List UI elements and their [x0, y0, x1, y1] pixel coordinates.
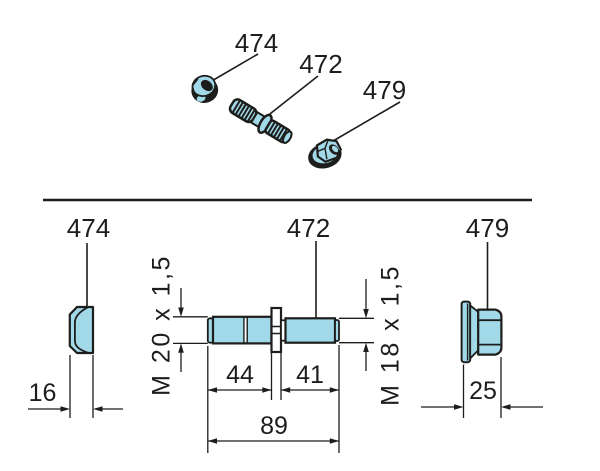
hex-body-outline: [478, 310, 501, 355]
dimension-16-label: 16: [29, 379, 57, 407]
part-label-479-dimensioned[interactable]: 479: [466, 213, 509, 243]
technical-drawing-svg: 474 472 479: [0, 0, 600, 471]
leader-line-472: [266, 76, 318, 117]
flange-plate: [462, 302, 471, 363]
dimension-arrowhead: [281, 387, 290, 393]
stud-collar-flange: [272, 308, 282, 352]
dimension-arrowhead: [330, 438, 339, 444]
dimensioned-section: 474 472 479 16: [28, 213, 543, 453]
extension-lines: [70, 355, 93, 418]
parts-diagram: 474 472 479: [0, 0, 600, 471]
leader-line-474: [210, 54, 258, 82]
dimension-arrowhead: [61, 406, 71, 412]
flange-nut-479-side-view: 25: [421, 302, 543, 418]
extension-lines: [173, 317, 208, 344]
dimension-arrowhead: [178, 343, 184, 352]
part-label-474-pictorial[interactable]: 474: [235, 28, 278, 58]
nut-474-side-view: 16: [28, 307, 123, 418]
part-label-479-pictorial[interactable]: 479: [363, 75, 406, 105]
dimension-m20-label: M 20 x 1,5: [148, 254, 176, 396]
leader-line-479: [333, 102, 400, 141]
dimension-arrowhead: [262, 387, 271, 393]
dimension-arrowhead: [501, 404, 511, 410]
dimension-arrowhead: [454, 404, 464, 410]
flange-nut-479-isometric: [305, 137, 345, 172]
dimension-44-label: 44: [226, 361, 254, 389]
pictorial-section: 474 472 479: [187, 28, 406, 172]
length-dimensions: 44 41 89: [208, 345, 339, 453]
extension-lines: [339, 318, 374, 342]
dimension-arrowhead: [330, 387, 339, 393]
part-label-474-dimensioned[interactable]: 474: [67, 213, 110, 243]
nut-outline: [70, 307, 93, 353]
part-label-472-pictorial[interactable]: 472: [299, 49, 342, 79]
stud-left-section: [213, 317, 272, 344]
dimension-25-label: 25: [469, 377, 497, 405]
dimension-m18: M 18 x 1,5: [339, 264, 405, 406]
flange-cone: [470, 306, 478, 359]
stud-right-chamfer: [335, 320, 339, 341]
dimension-arrowhead: [208, 438, 217, 444]
dimension-m18-label: M 18 x 1,5: [377, 264, 405, 406]
stud-472-side-view: M 20 x 1,5 M 18 x 1,5 44: [148, 254, 405, 453]
dimension-m20: M 20 x 1,5: [148, 254, 208, 396]
stud-right-section: [286, 318, 336, 342]
stud-472-isometric: [227, 95, 295, 147]
dimension-arrowhead: [363, 343, 369, 352]
dimension-89-label: 89: [260, 412, 288, 440]
dimension-arrowhead: [93, 406, 103, 412]
dimension-arrowhead: [208, 387, 217, 393]
dimension-41-label: 41: [296, 361, 324, 389]
dimension-arrowhead: [178, 308, 184, 317]
dimension-arrowhead: [363, 309, 369, 318]
part-label-472-dimensioned[interactable]: 472: [287, 213, 330, 243]
